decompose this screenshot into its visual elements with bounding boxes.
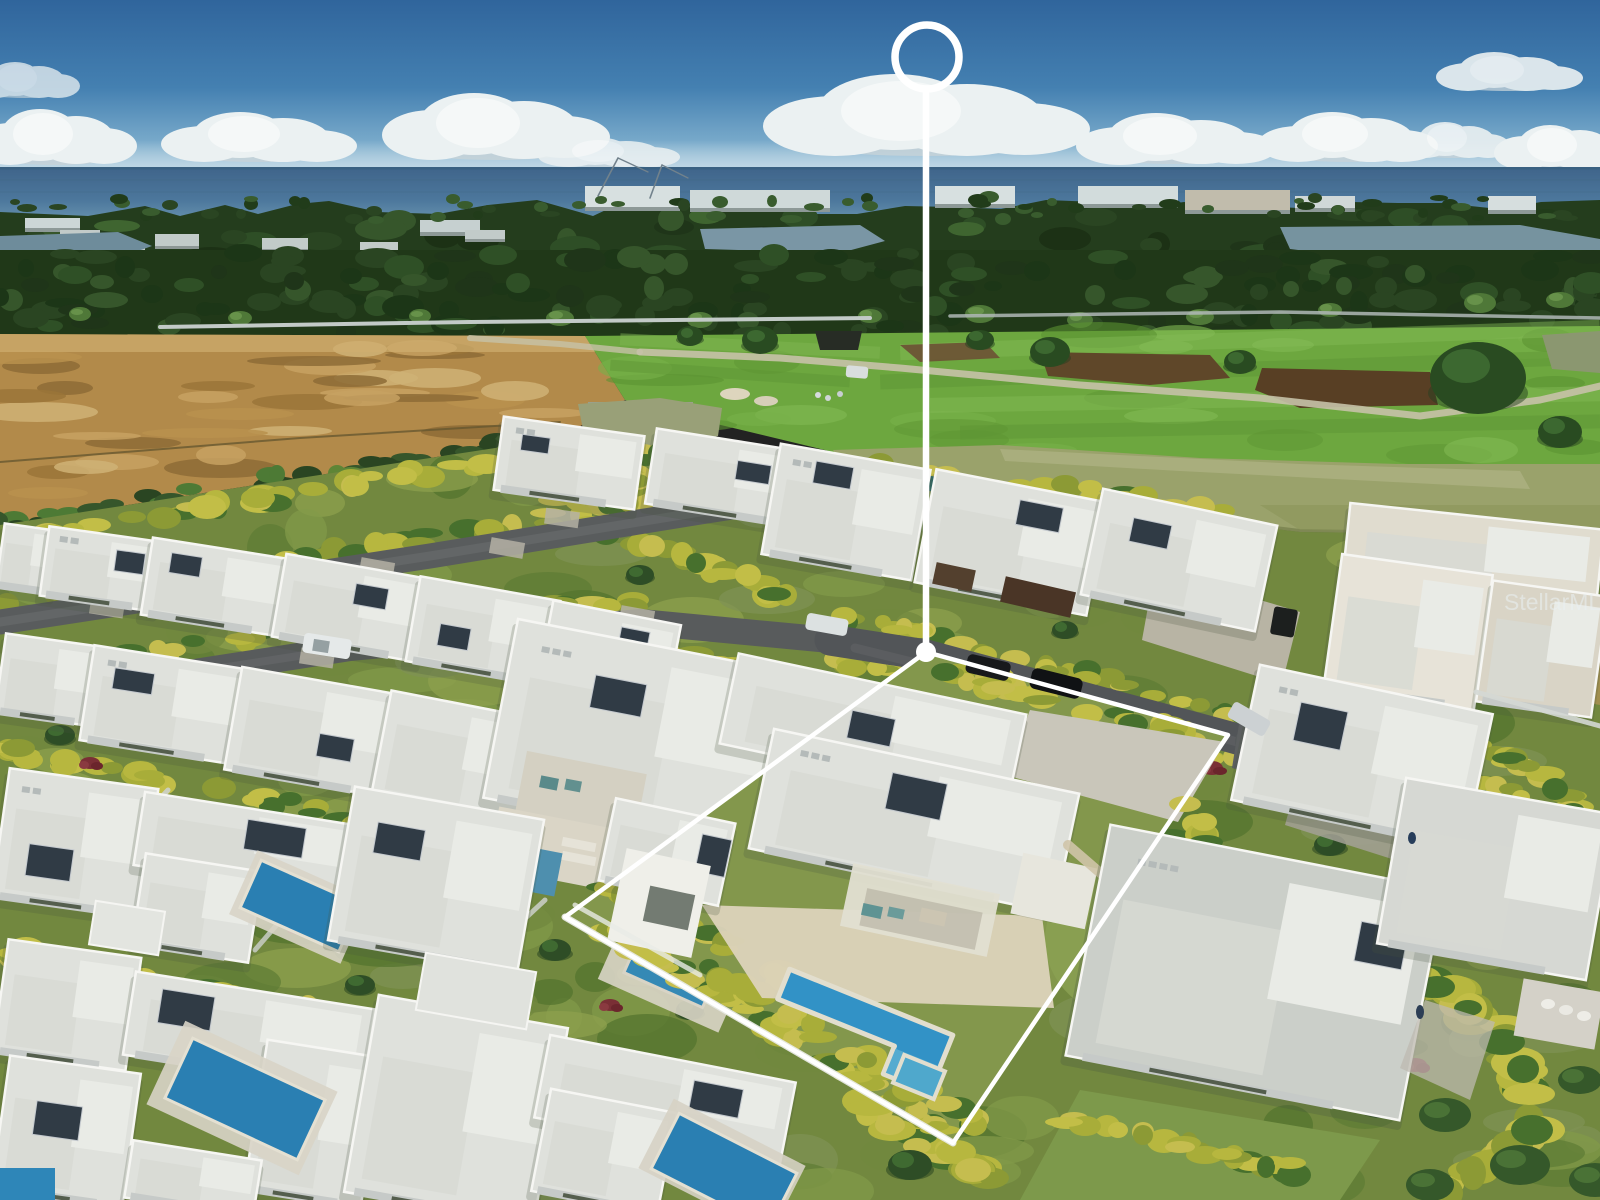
svg-text:StellarMLS: StellarMLS (1504, 589, 1600, 615)
